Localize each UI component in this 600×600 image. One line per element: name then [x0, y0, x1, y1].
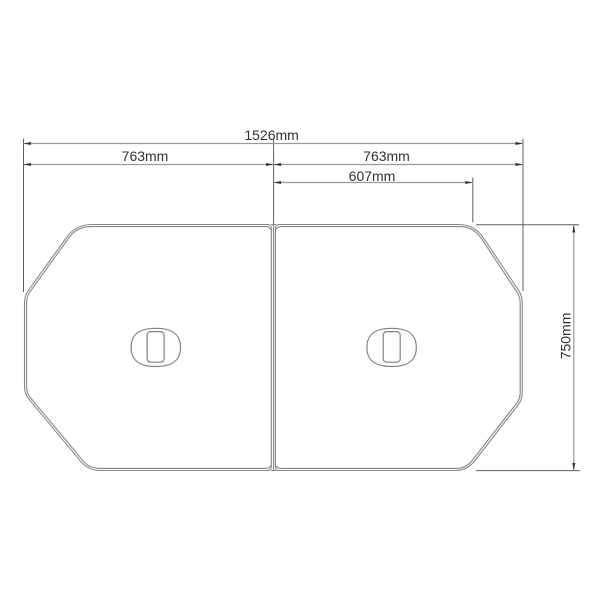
- svg-text:763mm: 763mm: [363, 148, 410, 164]
- svg-text:1526mm: 1526mm: [244, 127, 298, 143]
- svg-text:763mm: 763mm: [122, 148, 169, 164]
- svg-text:607mm: 607mm: [349, 168, 396, 184]
- svg-text:750mm: 750mm: [558, 313, 574, 360]
